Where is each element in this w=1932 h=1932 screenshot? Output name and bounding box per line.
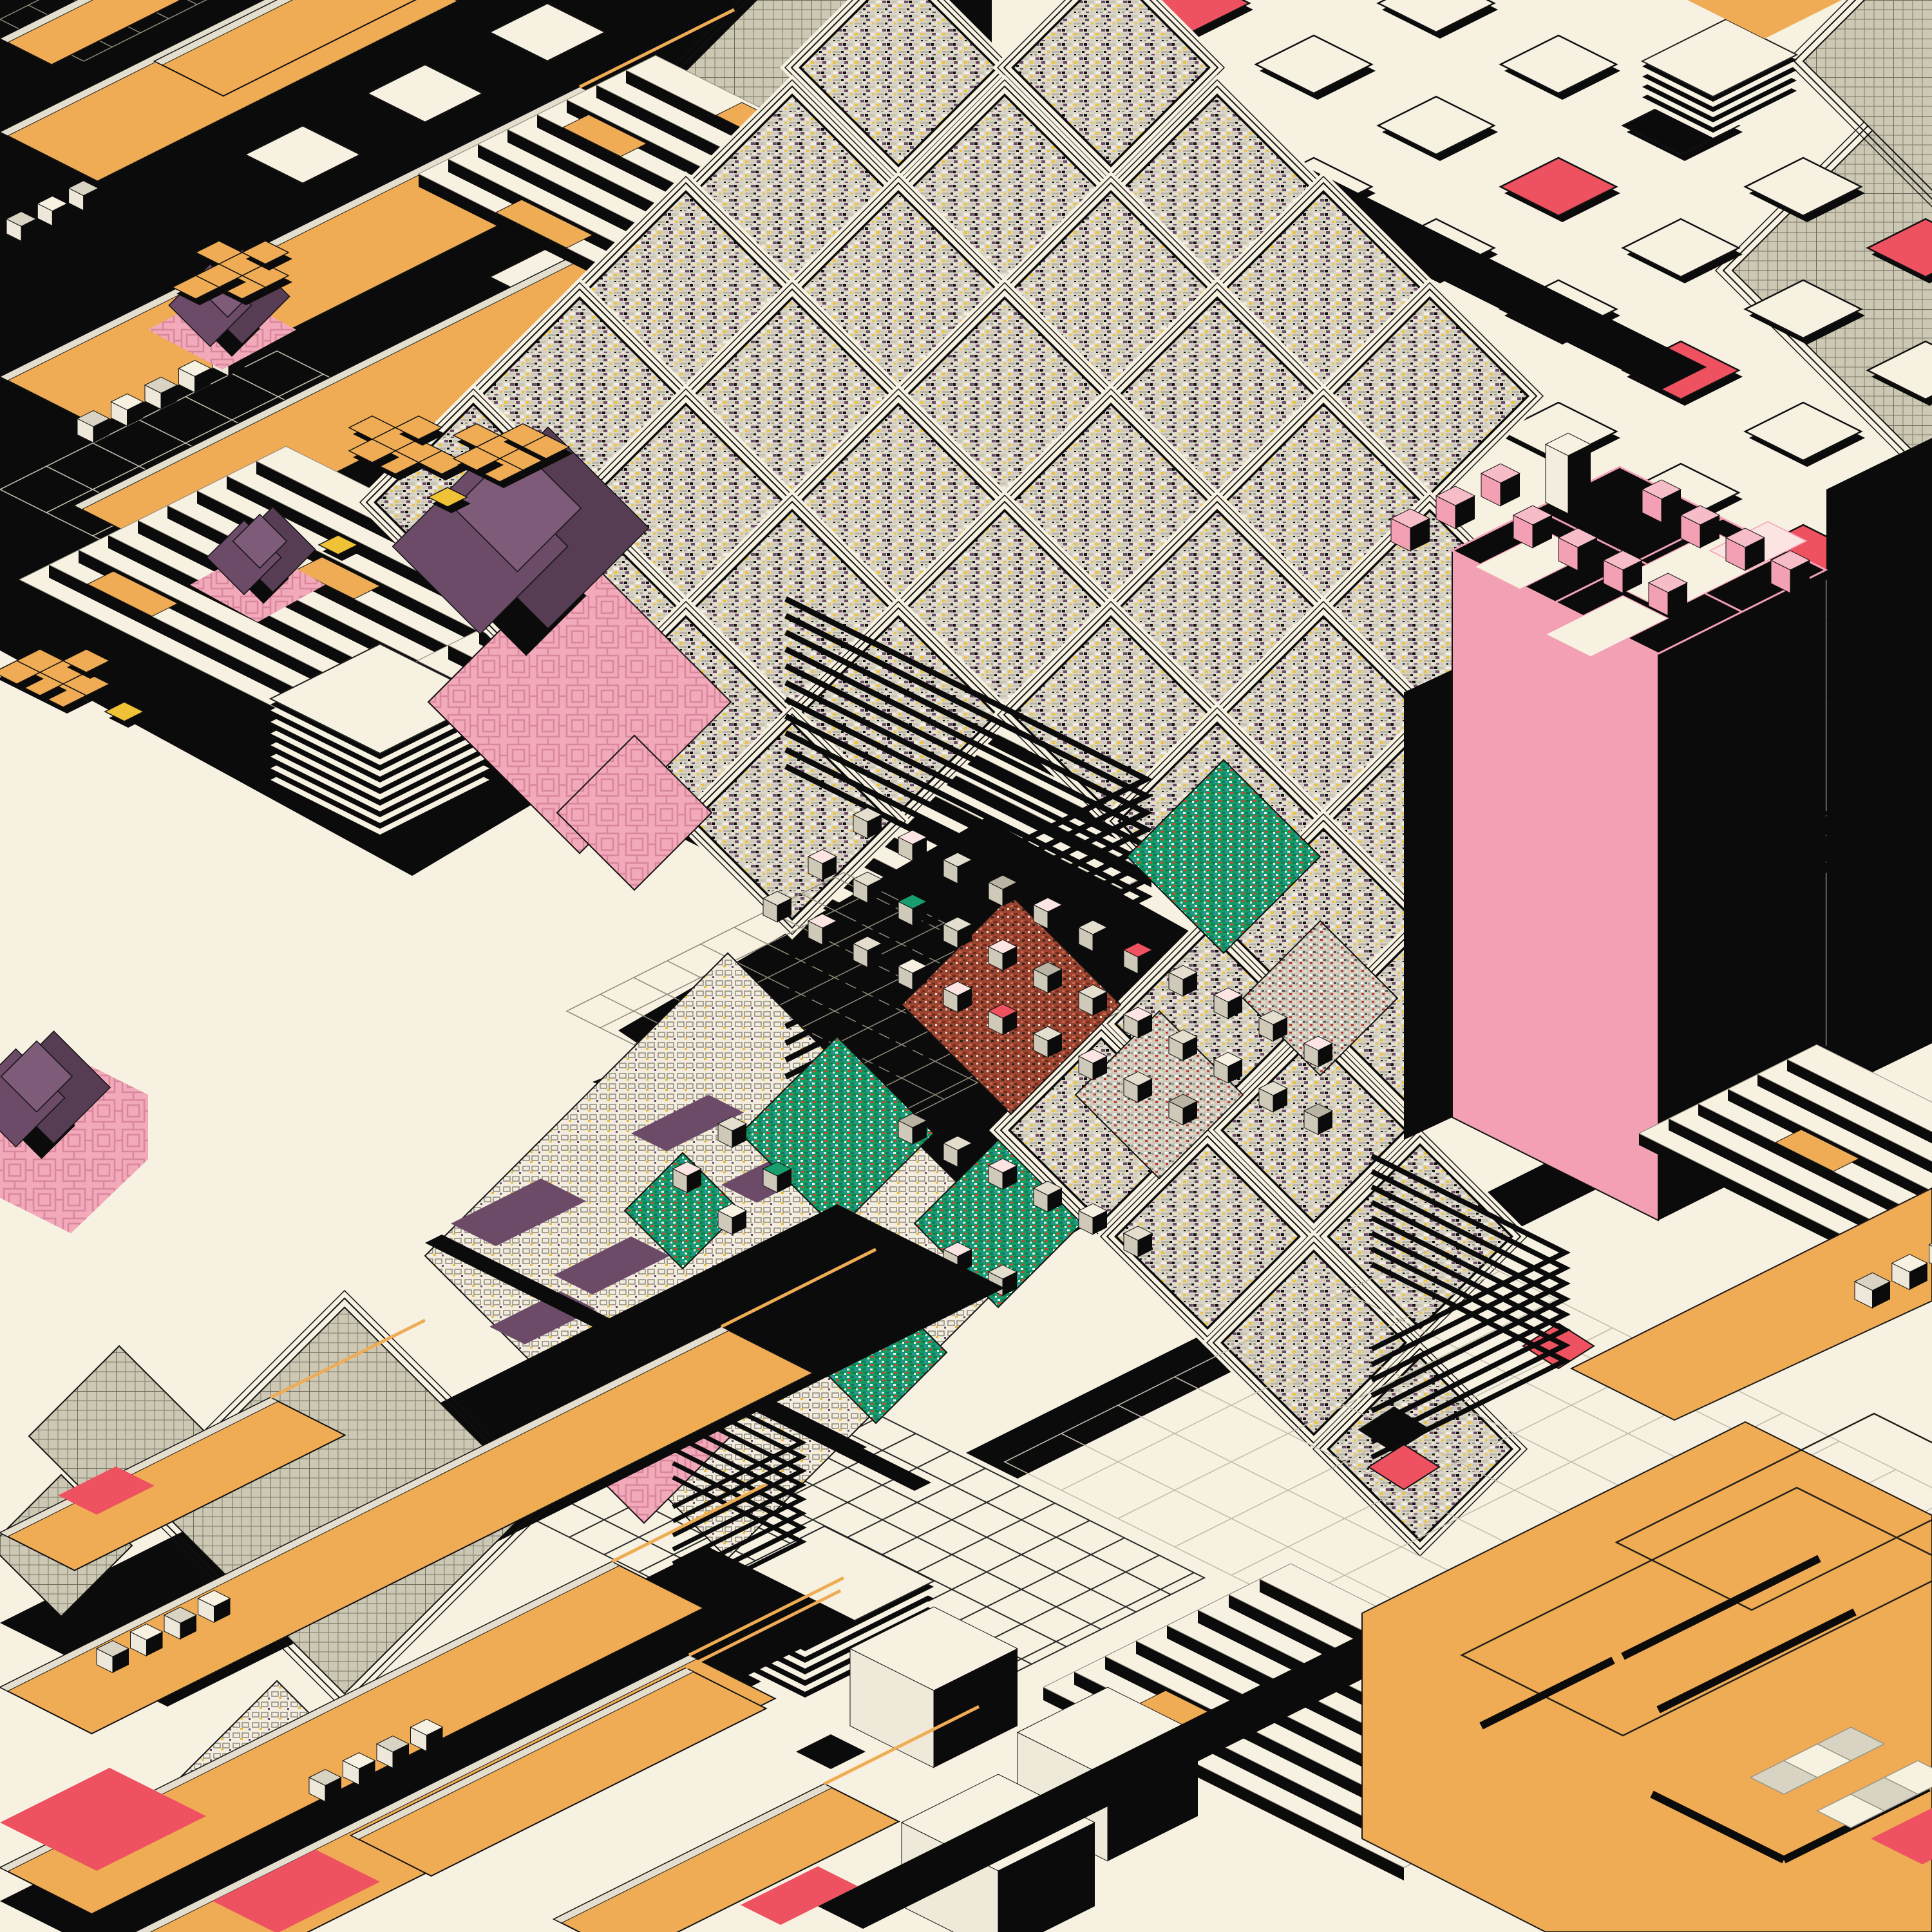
generative-iso-city-artwork <box>0 0 1932 1932</box>
tower-core-right <box>1568 444 1591 514</box>
tower-core-left <box>1546 444 1568 514</box>
artwork-stage <box>0 0 1932 1932</box>
black-strip-tower-left <box>1404 670 1452 1140</box>
tower-left-face <box>1452 551 1658 1220</box>
black-slab-tower-right <box>1826 438 1932 1095</box>
